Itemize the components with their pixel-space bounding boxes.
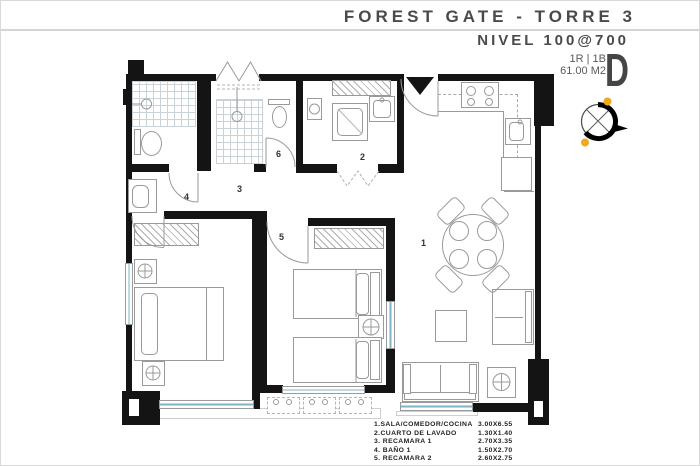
room-label: 3 [237,184,242,194]
bed-pillow [356,341,369,379]
bed-fold-line [206,288,207,360]
washer-drum [337,108,363,136]
legend-room-name: 1.SALA/COMEDOR/COCINA [374,421,478,430]
door-arc [401,79,438,116]
legend-room-name: 2.CUARTO DE LAVADO [374,430,478,439]
nightstand-symbol [358,315,384,339]
wall [252,211,267,393]
wall [438,74,534,81]
laundry-sink-basin [373,100,391,118]
legend-room-dims: 3.00X6.55 [478,421,513,430]
loveseat-back [525,291,532,343]
sofa-back [404,392,476,400]
window [125,263,133,325]
laundry-shelf-symbol [332,80,391,96]
legend-row: 1.SALA/COMEDOR/COCINA 3.00X6.55 [374,421,513,430]
entry-arrow-icon [406,77,434,95]
wall-notch [129,399,139,416]
folding-door [337,171,379,186]
wall [197,79,211,171]
kitchen-counter [438,111,504,191]
legend-room-dims: 1.30X1.40 [478,430,513,439]
wall [254,164,266,172]
wall [296,164,337,173]
kitchen-counter-end [504,191,534,192]
bed-headboard [370,272,380,316]
wall [123,89,132,105]
legend-room-dims: 2.70X3.35 [478,438,513,447]
unit-area: 61.00 M2 [560,65,606,77]
wall [535,126,541,364]
header-divider [1,29,700,31]
refrigerator-symbol [501,157,532,191]
bed-pillow [141,293,158,355]
toilet-symbol [134,129,141,155]
wall [164,211,252,219]
bathroom2-shower-tiles [216,99,263,164]
toilet-symbol [272,106,287,128]
room-label: 1 [421,238,426,248]
legend: 1.SALA/COMEDOR/COCINA 3.00X6.55 2.CUARTO… [374,421,513,464]
unit-type: 1R | 1B [570,53,607,65]
legend-room-dims: 1.50X2.70 [478,447,513,456]
bed-pillow [356,273,369,315]
loveseat-cushion-divider [495,317,523,318]
water-heater-symbol [307,98,322,120]
legend-room-name: 4. BAÑO 1 [374,447,478,456]
room-label: 2 [360,152,365,162]
side-table-symbol [487,367,516,398]
north-compass-icon [581,98,628,147]
sofa-armrest [469,364,477,394]
nightstand-symbol [142,361,165,386]
legend-room-dims: 2.60X2.75 [478,455,513,464]
page-title: FOREST GATE - TORRE 3 [344,7,636,27]
wall [308,218,388,226]
legend-room-name: 3. RECAMARA 1 [374,438,478,447]
dining-table-symbol [442,214,504,276]
toilet-symbol [141,131,162,156]
unit-letter: D [605,43,629,97]
legend-room-name: 5. RECAMARA 2 [374,455,478,464]
sofa-cushion-divider [440,365,441,393]
room-label: 5 [279,232,284,242]
window [400,402,473,411]
wall [534,74,554,126]
wall [126,164,169,172]
balcony-sill [396,411,478,416]
wall [473,403,530,412]
legend-row: 4. BAÑO 1 1.50X2.70 [374,447,513,456]
room-label: 6 [276,149,281,159]
stove-symbol [461,82,499,108]
door-arc [267,222,308,263]
kitchen-sink-basin [509,122,524,141]
wall [122,391,160,425]
floor-plan-sheet: FOREST GATE - TORRE 3 NIVEL 100@700 1R |… [0,0,700,466]
wall [128,60,144,74]
wall [397,74,404,173]
terrace-double-door [216,62,261,89]
ac-unit-symbol [303,397,336,414]
closet-symbol [134,223,199,246]
legend-row: 3. RECAMARA 1 2.70X3.35 [374,438,513,447]
legend-row: 5. RECAMARA 2 2.60X2.75 [374,455,513,464]
window [386,301,395,349]
wall [296,79,303,171]
closet-symbol [314,228,384,249]
ac-unit-symbol [339,397,372,414]
vanity-sink-basin [132,185,149,208]
wall [263,385,283,393]
coffee-table-symbol [435,310,467,342]
sofa-armrest [403,364,411,394]
window [282,386,365,394]
toilet-symbol [268,99,290,105]
bed-headboard [370,340,380,380]
ac-unit-symbol [267,397,300,414]
window [159,400,254,409]
room-label: 4 [184,192,189,202]
bathroom-shower-tiles [132,81,196,127]
wall [364,385,389,393]
legend-row: 2.CUARTO DE LAVADO 1.30X1.40 [374,430,513,439]
wall-notch [534,401,543,417]
nightstand-symbol [134,259,157,284]
wall [126,74,132,399]
